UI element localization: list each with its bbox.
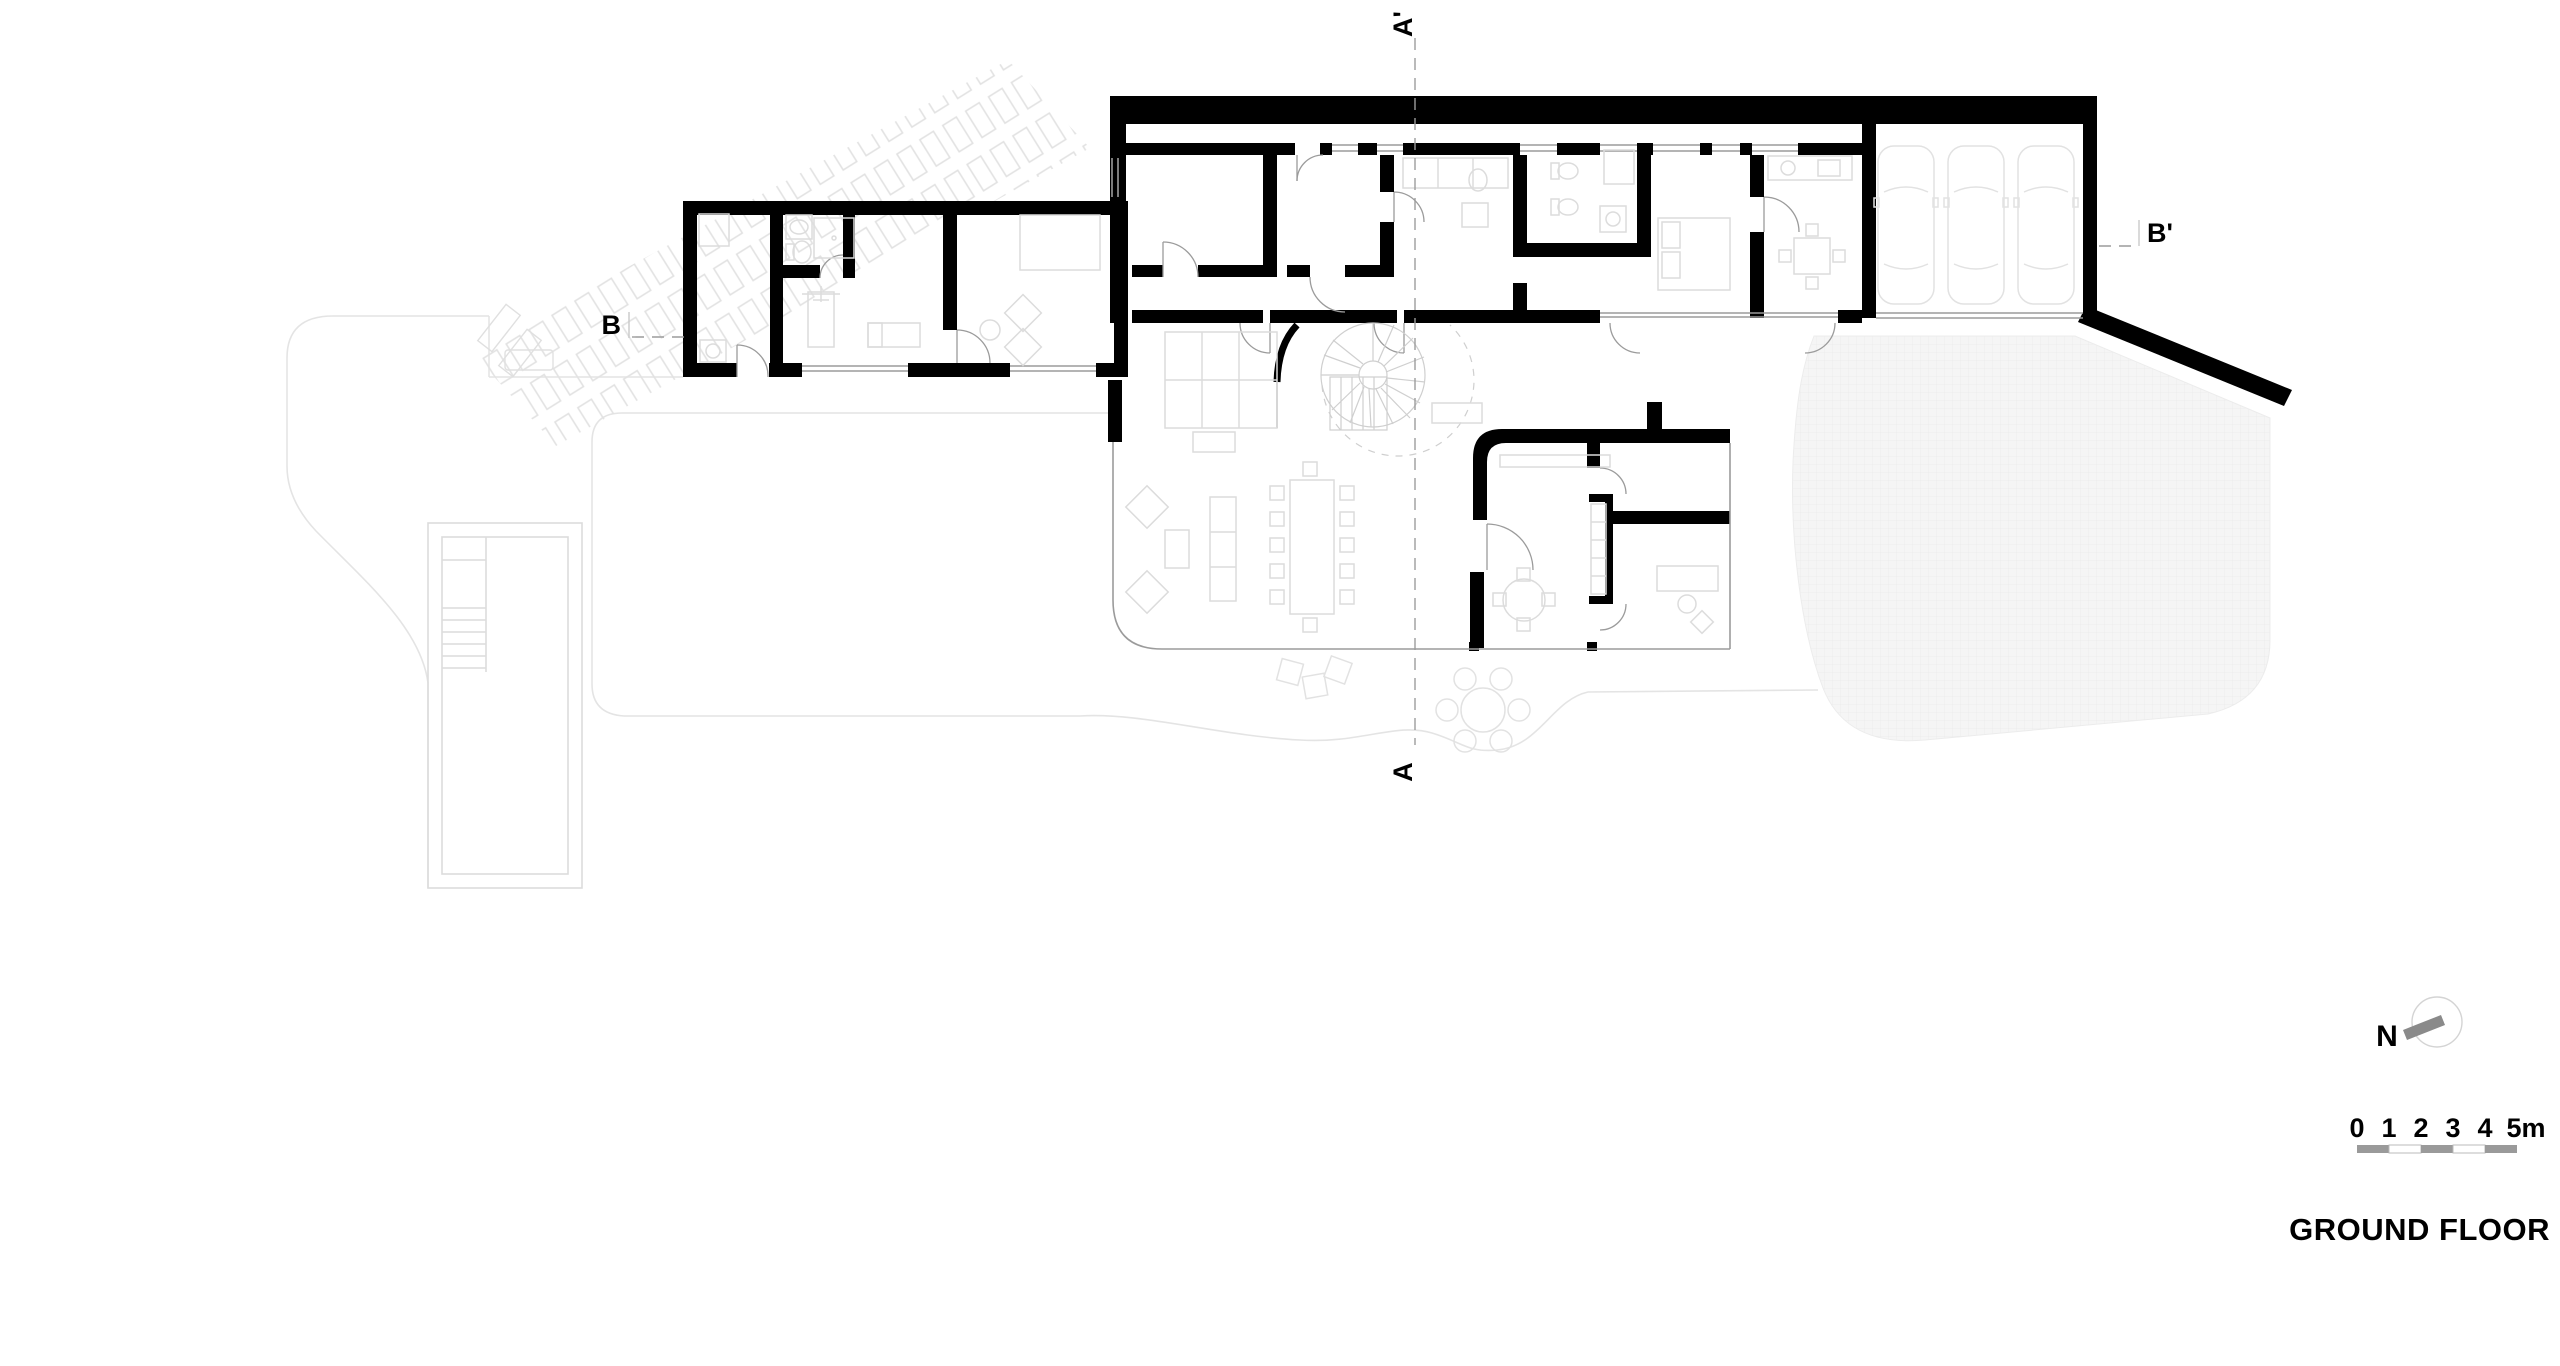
section-label-a-top: A' — [1388, 11, 1418, 37]
plan-title: GROUND FLOOR — [2289, 1212, 2550, 1247]
scale-label-5m: 5m — [2506, 1113, 2545, 1143]
floor-plan-page: A' A B B' N 0 1 2 3 4 5m GROUND FLOOR — [0, 0, 2560, 1366]
car-icon — [2014, 146, 2078, 304]
swimming-pool — [428, 523, 582, 888]
curved-stair-wall — [1277, 325, 1297, 382]
scale-segment — [2453, 1145, 2485, 1153]
pool-outer — [428, 523, 582, 888]
scale-bar: 0 1 2 3 4 5m — [2349, 1113, 2545, 1153]
living-area-furniture — [1126, 332, 1718, 633]
ground-floor-plan-drawing: A' A B B' N 0 1 2 3 4 5m GROUND FLOOR — [0, 0, 2560, 1366]
wall-top-band — [1118, 96, 2097, 124]
scale-label-3: 3 — [2445, 1113, 2460, 1143]
spiral-staircase — [1321, 323, 1474, 456]
scale-label-1: 1 — [2381, 1113, 2396, 1143]
north-label: N — [2376, 1020, 2398, 1053]
scale-segment — [2357, 1145, 2389, 1153]
garage-cars — [1874, 146, 2078, 304]
driveway-hatch — [1793, 336, 2270, 741]
compass-needle-icon — [2403, 1015, 2445, 1040]
pool-inner — [442, 537, 568, 874]
scale-label-0: 0 — [2349, 1113, 2364, 1143]
car-icon — [1944, 146, 2008, 304]
scale-segment — [2389, 1145, 2421, 1153]
scale-segment — [2485, 1145, 2517, 1153]
lawn-boundary — [592, 413, 1818, 751]
north-indicator: N — [2376, 997, 2462, 1053]
section-label-b-right: B' — [2147, 218, 2173, 248]
section-label-b-left: B — [602, 310, 622, 340]
section-label-a-bottom: A — [1388, 762, 1418, 782]
scale-label-2: 2 — [2413, 1113, 2428, 1143]
outdoor-furniture — [1277, 656, 1530, 752]
bedroom-wing-furniture — [1403, 150, 1852, 290]
bedroom-wing-walls — [1124, 143, 1875, 323]
car-icon — [1874, 146, 1938, 304]
terrain-contour-west — [287, 316, 489, 888]
scale-segment — [2421, 1145, 2453, 1153]
scale-label-4: 4 — [2477, 1113, 2492, 1143]
